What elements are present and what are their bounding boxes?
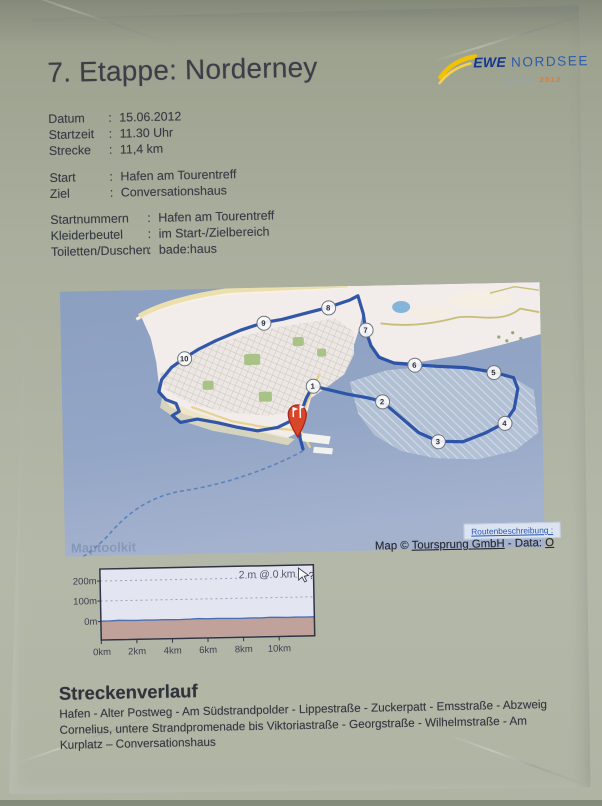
route-marker-1: 1 — [305, 378, 320, 393]
svg-text:0m: 0m — [84, 617, 98, 628]
date-time-distance-block: Datum:15.06.2012 Startzeit:11.30 Uhr Str… — [48, 108, 182, 159]
route-marker-8: 8 — [320, 300, 335, 315]
logo-year: 2012 — [540, 77, 562, 84]
route-description-link[interactable]: Routenbeschreibung : — [471, 525, 553, 537]
logo-sub: LAUF — [506, 77, 536, 85]
elevation-chart: 200m 100m 0m 0km 2km 4km 6km 8km 10km 2 … — [59, 560, 323, 663]
route-marker-3: 3 — [430, 434, 445, 449]
logo-brand: EWE — [473, 54, 506, 71]
svg-text:100m: 100m — [73, 596, 97, 607]
logo-name: NORDSEE — [511, 53, 589, 70]
streckenverlauf-text: Hafen - Alter Postweg - Am Südstrandpold… — [59, 697, 572, 754]
route-marker-10: 10 — [176, 351, 191, 366]
info-row-ziel: Ziel:Conversationshaus — [50, 182, 237, 202]
page-title: 7. Etappe: Norderney — [47, 52, 318, 89]
route-marker-9: 9 — [256, 315, 271, 330]
streckenverlauf-heading: Streckenverlauf — [59, 680, 198, 705]
info-row-toiletten: Toiletten/Duschen:bade:haus — [51, 240, 275, 261]
data-source-link[interactable]: O — [545, 537, 554, 549]
route-marker-6: 6 — [407, 357, 422, 372]
y-axis-labels: 200m 100m 0m — [73, 576, 98, 628]
printed-page: 7. Etappe: Norderney EWENORDSEE LAUF 201… — [0, 0, 602, 806]
route-marker-2: 2 — [374, 394, 389, 409]
route-marker-5: 5 — [486, 364, 501, 379]
logistics-block: Startnummern:Hafen am Tourentreff Kleide… — [50, 207, 275, 260]
map-attribution: Map © Toursprung GmbH - Data: O — [375, 537, 554, 553]
svg-text:8km: 8km — [235, 644, 253, 655]
maptoolkit-watermark: Maptoolkit — [71, 539, 137, 555]
event-logo: EWENORDSEE LAUF 2012 — [443, 46, 582, 89]
svg-text:0km: 0km — [93, 647, 111, 658]
toursprung-link[interactable]: Toursprung GmbH — [412, 538, 505, 552]
svg-text:200m: 200m — [73, 576, 97, 587]
svg-text:10km: 10km — [268, 643, 292, 654]
svg-text:4km: 4km — [164, 645, 182, 656]
route-marker-4: 4 — [497, 415, 512, 430]
info-row-strecke: Strecke:11,4 km — [49, 141, 182, 160]
x-axis-labels: 0km 2km 4km 6km 8km 10km — [93, 643, 291, 658]
svg-text:?: ? — [309, 571, 315, 582]
chart-tooltip: 2 m @ 0 km — [239, 568, 296, 581]
map-canvas: Maptoolkit — [60, 282, 545, 557]
route-marker-7: 7 — [358, 322, 373, 337]
logo-swoosh-icon — [437, 50, 478, 87]
svg-text:6km: 6km — [199, 645, 217, 656]
route-map: Maptoolkit 1 2 3 4 5 6 7 8 9 10 — [60, 282, 545, 557]
svg-text:2km: 2km — [128, 646, 146, 657]
start-ziel-block: Start:Hafen am Tourentreff Ziel:Conversa… — [49, 166, 237, 202]
